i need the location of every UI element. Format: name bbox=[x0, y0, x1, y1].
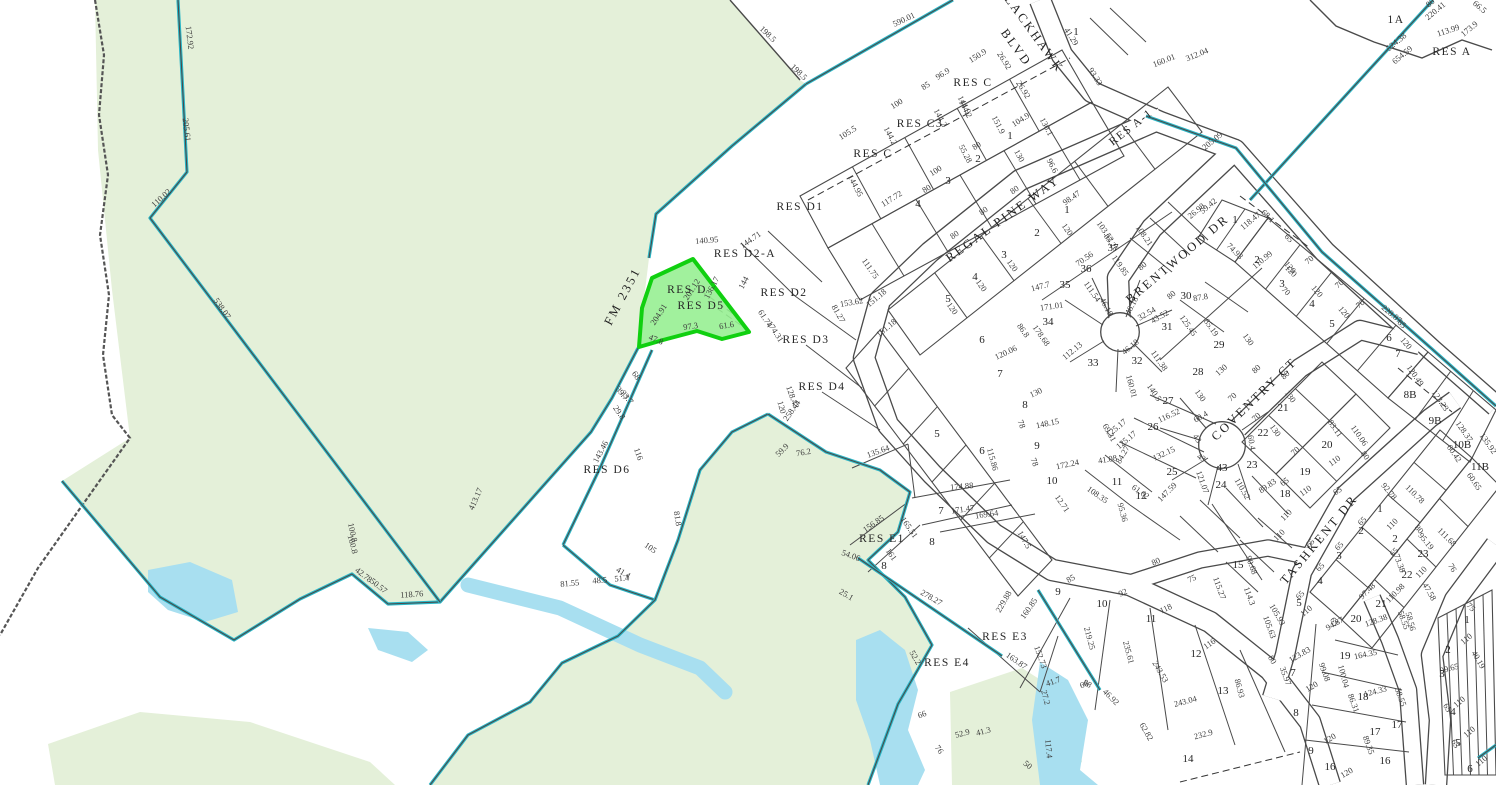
dimension-label: 117.72 bbox=[879, 188, 904, 209]
lot-line bbox=[1160, 268, 1262, 360]
lot-number: 19 bbox=[1340, 650, 1352, 662]
lot-number: 1 bbox=[1232, 214, 1238, 226]
lot-number: 29 bbox=[1214, 339, 1226, 351]
dimension-label: 118.47 bbox=[1238, 209, 1262, 231]
lot-number: 19 bbox=[1300, 466, 1312, 478]
dimension-label: 105 bbox=[643, 540, 659, 556]
lot-line bbox=[1200, 500, 1240, 538]
lot-number: 2 bbox=[975, 153, 981, 165]
dimension-label: 97.3 bbox=[683, 320, 699, 332]
lot-number: 16 bbox=[1325, 761, 1337, 773]
lot-number: 6 bbox=[979, 445, 985, 457]
lot-number: 9 bbox=[1055, 586, 1061, 598]
lot-number: 3 bbox=[945, 175, 951, 187]
lot-number: 36 bbox=[1081, 263, 1093, 275]
dimension-label: 100.04 bbox=[1336, 664, 1352, 690]
lot-number: 7 bbox=[1290, 667, 1296, 679]
dimension-label: 172.24 bbox=[1055, 457, 1081, 472]
dimension-label: 74.93 bbox=[1225, 241, 1246, 262]
dimension-label: 48.5 bbox=[592, 574, 608, 585]
dimension-label: 120 bbox=[1336, 304, 1352, 320]
dimension-label: 66.5 bbox=[1471, 0, 1489, 15]
lot-number: 9 bbox=[1308, 745, 1314, 757]
dimension-label: 118.76 bbox=[400, 588, 424, 600]
lot-number: 14 bbox=[1183, 753, 1195, 765]
dimension-label: 29.8 bbox=[611, 403, 628, 421]
lot-number: 10 bbox=[1097, 598, 1109, 610]
dimension-label: 590.01 bbox=[891, 10, 916, 29]
dimension-label: 121.07 bbox=[1194, 469, 1211, 494]
water-area bbox=[368, 628, 428, 662]
lot-number: 8 bbox=[881, 560, 887, 572]
lot-number: 6 bbox=[979, 334, 985, 346]
dimension-label: 147.7 bbox=[1030, 279, 1051, 294]
lot-number: 18 bbox=[1358, 691, 1370, 703]
lot-line bbox=[1465, 604, 1471, 775]
dimension-label: 86.8 bbox=[1015, 321, 1032, 339]
dimension-label: 147.59 bbox=[1155, 480, 1179, 504]
lot-number: 12 bbox=[1136, 490, 1147, 502]
dimension-label: 153.62 bbox=[839, 295, 864, 309]
dimension-label: 152.73 bbox=[1032, 644, 1049, 669]
lot-line bbox=[1065, 300, 1103, 325]
dimension-label: 112.13 bbox=[1060, 339, 1084, 361]
lot-number: 2 bbox=[1392, 533, 1398, 545]
lot-number: 5 bbox=[1329, 318, 1335, 330]
lot-number: 7 bbox=[938, 505, 944, 517]
dimension-label: 83.11 bbox=[1326, 418, 1345, 439]
reserve-label: RES C3 bbox=[897, 118, 943, 130]
dimension-label: 76 bbox=[1446, 561, 1459, 573]
lot-line bbox=[1130, 505, 1180, 540]
dimension-label: 110 bbox=[1413, 564, 1429, 580]
lot-number: 24 bbox=[1216, 479, 1228, 491]
dimension-label: 110 bbox=[1384, 516, 1400, 532]
lot-number: 22 bbox=[1402, 569, 1413, 581]
reserve-label: RES E3 bbox=[982, 631, 1028, 643]
dimension-label: 104.9 bbox=[1010, 110, 1032, 129]
dimension-label: 114.3 bbox=[1242, 585, 1258, 606]
dimension-label: 78 bbox=[1029, 456, 1041, 467]
dimension-label: 173.9 bbox=[1459, 19, 1480, 39]
dimension-label: 163.87 bbox=[1004, 650, 1029, 672]
reserve-label: RES D3 bbox=[782, 334, 829, 346]
lot-line bbox=[768, 231, 822, 282]
lot-line bbox=[1322, 672, 1402, 690]
lot-number: 32 bbox=[1132, 355, 1143, 367]
lot-line bbox=[1090, 18, 1128, 55]
dimension-label: 160.85 bbox=[1018, 596, 1040, 621]
lot-number: 5 bbox=[1296, 597, 1302, 609]
dimension-label: 110 bbox=[1297, 483, 1313, 498]
dimension-label: 164.35 bbox=[1353, 647, 1378, 662]
lot-line bbox=[981, 236, 1014, 281]
dimension-label: 115.27 bbox=[1211, 575, 1228, 600]
dimension-label: 59.42 bbox=[1198, 196, 1219, 216]
reserve-label: RES D bbox=[667, 284, 707, 296]
cyan-boundary bbox=[563, 545, 655, 600]
lot-number: 23 bbox=[1247, 459, 1259, 471]
dimension-label: 80 bbox=[1249, 362, 1262, 375]
lot-number: 11 bbox=[1146, 613, 1157, 625]
dimension-label: 75 bbox=[1186, 572, 1198, 585]
dimension-label: 113.99 bbox=[1436, 22, 1461, 39]
dimension-label: 76 bbox=[933, 743, 946, 756]
dimension-label: 41.08 bbox=[1097, 452, 1118, 465]
dimension-label: 95.36 bbox=[1116, 502, 1131, 523]
lot-line bbox=[1116, 349, 1118, 392]
dimension-label: 60.4 bbox=[1192, 408, 1211, 424]
lot-number: 3 bbox=[1001, 249, 1007, 261]
reserve-label: 1A bbox=[1387, 14, 1404, 26]
dimension-label: 66 bbox=[916, 708, 927, 720]
dimension-label: 60.65 bbox=[1465, 471, 1484, 492]
dimension-label: 47.58 bbox=[1420, 581, 1438, 603]
lot-number: 4 bbox=[915, 198, 921, 210]
dimension-label: 117.4 bbox=[1043, 739, 1055, 759]
lot-number: 8 bbox=[1022, 399, 1028, 411]
dimension-label: 111.38 bbox=[1149, 348, 1170, 372]
dimension-label: 125.45 bbox=[1178, 313, 1200, 338]
reserve-label: RES A bbox=[1432, 46, 1471, 58]
dimension-label: 144.2 bbox=[957, 98, 975, 120]
lot-number: 3 bbox=[1279, 278, 1285, 290]
lot-number: 4 bbox=[972, 271, 978, 283]
dimension-label: 110 bbox=[1278, 507, 1294, 523]
lot-number: 7 bbox=[997, 368, 1003, 380]
dimension-label: 243.04 bbox=[1173, 693, 1199, 709]
dimension-label: 12.71 bbox=[1053, 493, 1072, 514]
dimension-label: 70 bbox=[1288, 444, 1301, 457]
dimension-label: 243.53 bbox=[1150, 659, 1170, 684]
cyan-boundary-casing bbox=[563, 545, 655, 600]
dimension-label: 219.25 bbox=[1082, 626, 1098, 651]
lot-number: 9 bbox=[1034, 440, 1040, 452]
lot-number: 1 bbox=[1007, 130, 1013, 142]
lot-line bbox=[1110, 8, 1146, 42]
dimension-label: 26.92 bbox=[995, 50, 1014, 72]
dimension-label: 60.4 bbox=[1246, 434, 1259, 451]
dimension-label: 26.92 bbox=[1014, 79, 1033, 101]
lot-number: 2 bbox=[1445, 644, 1451, 656]
dimension-label: 85 bbox=[919, 79, 932, 92]
lot-number: 17 bbox=[1392, 719, 1404, 731]
dimension-label: 140.95 bbox=[695, 234, 719, 246]
lot-number: 11B bbox=[1471, 461, 1489, 473]
lot-number: 5 bbox=[934, 428, 940, 440]
dimension-label: 87.8 bbox=[1192, 291, 1208, 303]
pond-area bbox=[0, 143, 100, 214]
dimension-label: 110 bbox=[1326, 453, 1342, 468]
dimension-label: 110 bbox=[1458, 631, 1474, 647]
dimension-label: 235.61 bbox=[1121, 640, 1137, 665]
reserve-label: RES D1 bbox=[776, 201, 823, 213]
cyan-boundary-casing bbox=[806, 0, 953, 84]
dimension-label: 135.92 bbox=[1478, 431, 1496, 456]
lot-line bbox=[1474, 599, 1479, 775]
reserve-label: RES D2 bbox=[760, 287, 807, 299]
dimension-label: 110.78 bbox=[1403, 482, 1426, 505]
lot-number: 31 bbox=[1162, 321, 1173, 333]
dimension-label: 130 bbox=[1268, 422, 1284, 438]
lot-number: 8B bbox=[1404, 389, 1417, 401]
lot-number: 35 bbox=[1060, 279, 1072, 291]
lot-line bbox=[1414, 462, 1446, 490]
lot-number: 26 bbox=[1148, 421, 1160, 433]
lot-number: 17 bbox=[1370, 726, 1382, 738]
lot-number: 27 bbox=[1163, 395, 1175, 407]
lot-number: 12 bbox=[1191, 648, 1202, 660]
reserve-label: RES D4 bbox=[798, 381, 845, 393]
reserve-label: RES C bbox=[853, 148, 892, 160]
dimension-label: 130 bbox=[1193, 387, 1209, 403]
dimension-label: 116.52 bbox=[1156, 406, 1181, 425]
dimension-label: 110 bbox=[1461, 724, 1477, 740]
dimension-label: 70 bbox=[1225, 390, 1238, 403]
lot-line bbox=[1075, 161, 1108, 206]
dimension-label: 46.92 bbox=[1101, 687, 1122, 708]
reserve-label: RES E1 bbox=[859, 533, 905, 545]
map-canvas[interactable]: 172.92205.61110.02538.07413.17143.46100.… bbox=[0, 0, 1496, 785]
dimension-label: 62.82 bbox=[1137, 721, 1155, 743]
dimension-label: 150.9 bbox=[967, 46, 989, 65]
dimension-label: 116 bbox=[632, 446, 646, 461]
lot-number: 4 bbox=[1309, 298, 1315, 310]
lot-number: 10B bbox=[1453, 439, 1471, 451]
dimension-label: 132.15 bbox=[1151, 444, 1176, 463]
dimension-label: 105.5 bbox=[837, 123, 859, 142]
cyan-boundary-casing bbox=[1250, 0, 1433, 200]
dimension-label: 96.9 bbox=[933, 65, 951, 81]
dimension-label: 278.27 bbox=[919, 587, 944, 607]
dimension-label: 111.75 bbox=[860, 256, 881, 280]
reserve-label: RES C bbox=[953, 77, 992, 89]
lot-block bbox=[800, 50, 1092, 248]
lot-number: 1 bbox=[1377, 503, 1383, 515]
lot-number: 21 bbox=[1278, 402, 1289, 414]
dimension-label: 85.19 bbox=[1202, 317, 1221, 338]
lot-number: 3 bbox=[1439, 668, 1445, 680]
dimension-label: 99.08 bbox=[1317, 661, 1333, 682]
dimension-label: 171.01 bbox=[1039, 299, 1064, 312]
lot-number: 16 bbox=[1380, 755, 1392, 767]
lot-number: 5 bbox=[945, 293, 951, 305]
lot-number: 28 bbox=[1193, 366, 1205, 378]
dimension-label: 68 bbox=[630, 369, 643, 382]
lot-number: 25 bbox=[1167, 466, 1179, 478]
lot-number: 20 bbox=[1351, 613, 1363, 625]
lot-number: 23 bbox=[1418, 548, 1430, 560]
dimension-label: 120 bbox=[1338, 765, 1354, 780]
dimension-label: 81.55 bbox=[560, 577, 580, 589]
lot-number: 21 bbox=[1376, 598, 1387, 610]
dimension-label: 160.01 bbox=[1124, 374, 1140, 399]
lot-line bbox=[1456, 609, 1462, 775]
map-viewport[interactable]: 172.92205.61110.02538.07413.17143.46100.… bbox=[0, 0, 1496, 785]
reserve-label: RES D2-A bbox=[714, 248, 776, 260]
lot-number: 11 bbox=[1112, 476, 1123, 488]
dimension-label: 130 bbox=[1241, 331, 1257, 347]
dimension-label: 232.9 bbox=[1193, 727, 1214, 742]
lot-number: 33 bbox=[1088, 357, 1100, 369]
lot-number: 2 bbox=[1034, 227, 1040, 239]
lot-number: 9B bbox=[1429, 415, 1442, 427]
dimension-label: 115.86 bbox=[985, 447, 1001, 472]
dimension-label: 120 bbox=[1060, 221, 1076, 237]
lot-number: 10 bbox=[1047, 475, 1059, 487]
dimension-label: 120.06 bbox=[993, 343, 1018, 362]
dimension-label: 51.4 bbox=[614, 572, 630, 583]
lot-number: 6 bbox=[1467, 763, 1473, 775]
lot-number: 34 bbox=[1043, 316, 1055, 328]
lot-line bbox=[1483, 595, 1488, 775]
dimension-label: 110.52 bbox=[1233, 476, 1253, 501]
lot-number: 6 bbox=[1386, 332, 1392, 344]
dimension-label: 151.9 bbox=[990, 114, 1008, 136]
dimension-label: 174.88 bbox=[950, 480, 974, 492]
lot-number: 15 bbox=[1233, 559, 1245, 571]
lot-number: 8 bbox=[929, 536, 935, 548]
dimension-label: 80 bbox=[1165, 288, 1178, 301]
lot-line bbox=[1295, 389, 1329, 421]
lot-number: 13 bbox=[1218, 685, 1230, 697]
dimension-label: 160.01 bbox=[1151, 51, 1176, 69]
lot-number: 8 bbox=[1293, 707, 1299, 719]
lot-number: 4 bbox=[1317, 575, 1323, 587]
lot-number: 37 bbox=[1108, 242, 1120, 254]
dimension-label: 111.68 bbox=[1436, 525, 1459, 548]
dimension-label: 130 bbox=[1213, 362, 1229, 378]
lot-number: 3 bbox=[1336, 550, 1342, 562]
lot-line bbox=[1336, 560, 1368, 588]
lot-number: 18 bbox=[1280, 488, 1292, 500]
dimension-label: 100 bbox=[927, 163, 943, 178]
lot-line bbox=[903, 407, 937, 444]
dimension-label: 229.88 bbox=[993, 589, 1013, 614]
dimension-label: 86.93 bbox=[1233, 678, 1248, 699]
lot-line bbox=[1180, 516, 1218, 552]
reserve-label: RES E4 bbox=[924, 657, 970, 669]
park-area bbox=[48, 712, 395, 785]
lot-number: 2 bbox=[1358, 525, 1364, 537]
dimension-label: 169.64 bbox=[974, 507, 999, 520]
dimension-label: 81.8 bbox=[672, 510, 684, 526]
lot-number: 7 bbox=[1395, 348, 1401, 360]
dimension-label: 100 bbox=[888, 96, 904, 111]
lot-number: 5 bbox=[1455, 737, 1461, 749]
lot-number: 1 bbox=[1073, 26, 1079, 38]
dimension-label: 312.04 bbox=[1184, 45, 1210, 63]
dimension-label: 120 bbox=[1303, 679, 1319, 694]
lot-line bbox=[1440, 499, 1469, 527]
dimension-label: 130 bbox=[1028, 385, 1044, 399]
lot-number: 1 bbox=[1064, 204, 1070, 216]
dimension-label: 78 bbox=[1016, 418, 1028, 429]
dimension-label: 144 bbox=[736, 274, 751, 291]
lot-number: 22 bbox=[1258, 427, 1269, 439]
reserve-label: RES D6 bbox=[583, 464, 630, 476]
dimension-label: 148.15 bbox=[1035, 416, 1060, 431]
dimension-label: 110.98 bbox=[1383, 581, 1406, 604]
lot-number: 43 bbox=[1217, 462, 1229, 474]
dimension-label: 130 bbox=[1012, 148, 1027, 164]
lot-number: 30 bbox=[1181, 290, 1193, 302]
lot-number: 4 bbox=[1450, 706, 1456, 718]
dashed-line bbox=[1180, 752, 1300, 782]
lot-number: 2 bbox=[1254, 254, 1260, 266]
lot-number: 1 bbox=[1464, 614, 1470, 626]
lot-number: 20 bbox=[1322, 439, 1334, 451]
reserve-label: RES D5 bbox=[677, 300, 724, 312]
